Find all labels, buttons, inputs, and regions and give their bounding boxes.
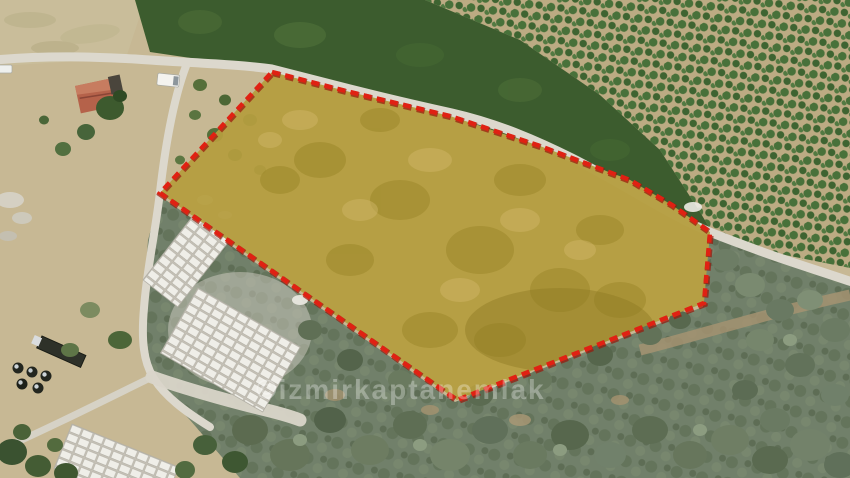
aerial-photo: ©izmirkaptanemlak xyxy=(0,0,850,478)
watermark-text: ©izmirkaptanemlak xyxy=(256,374,546,405)
vehicle-truck xyxy=(157,73,180,87)
aerial-photo-canvas: ©izmirkaptanemlak xyxy=(0,0,850,478)
vehicle-car xyxy=(0,65,12,73)
road-white-patch xyxy=(684,202,702,212)
